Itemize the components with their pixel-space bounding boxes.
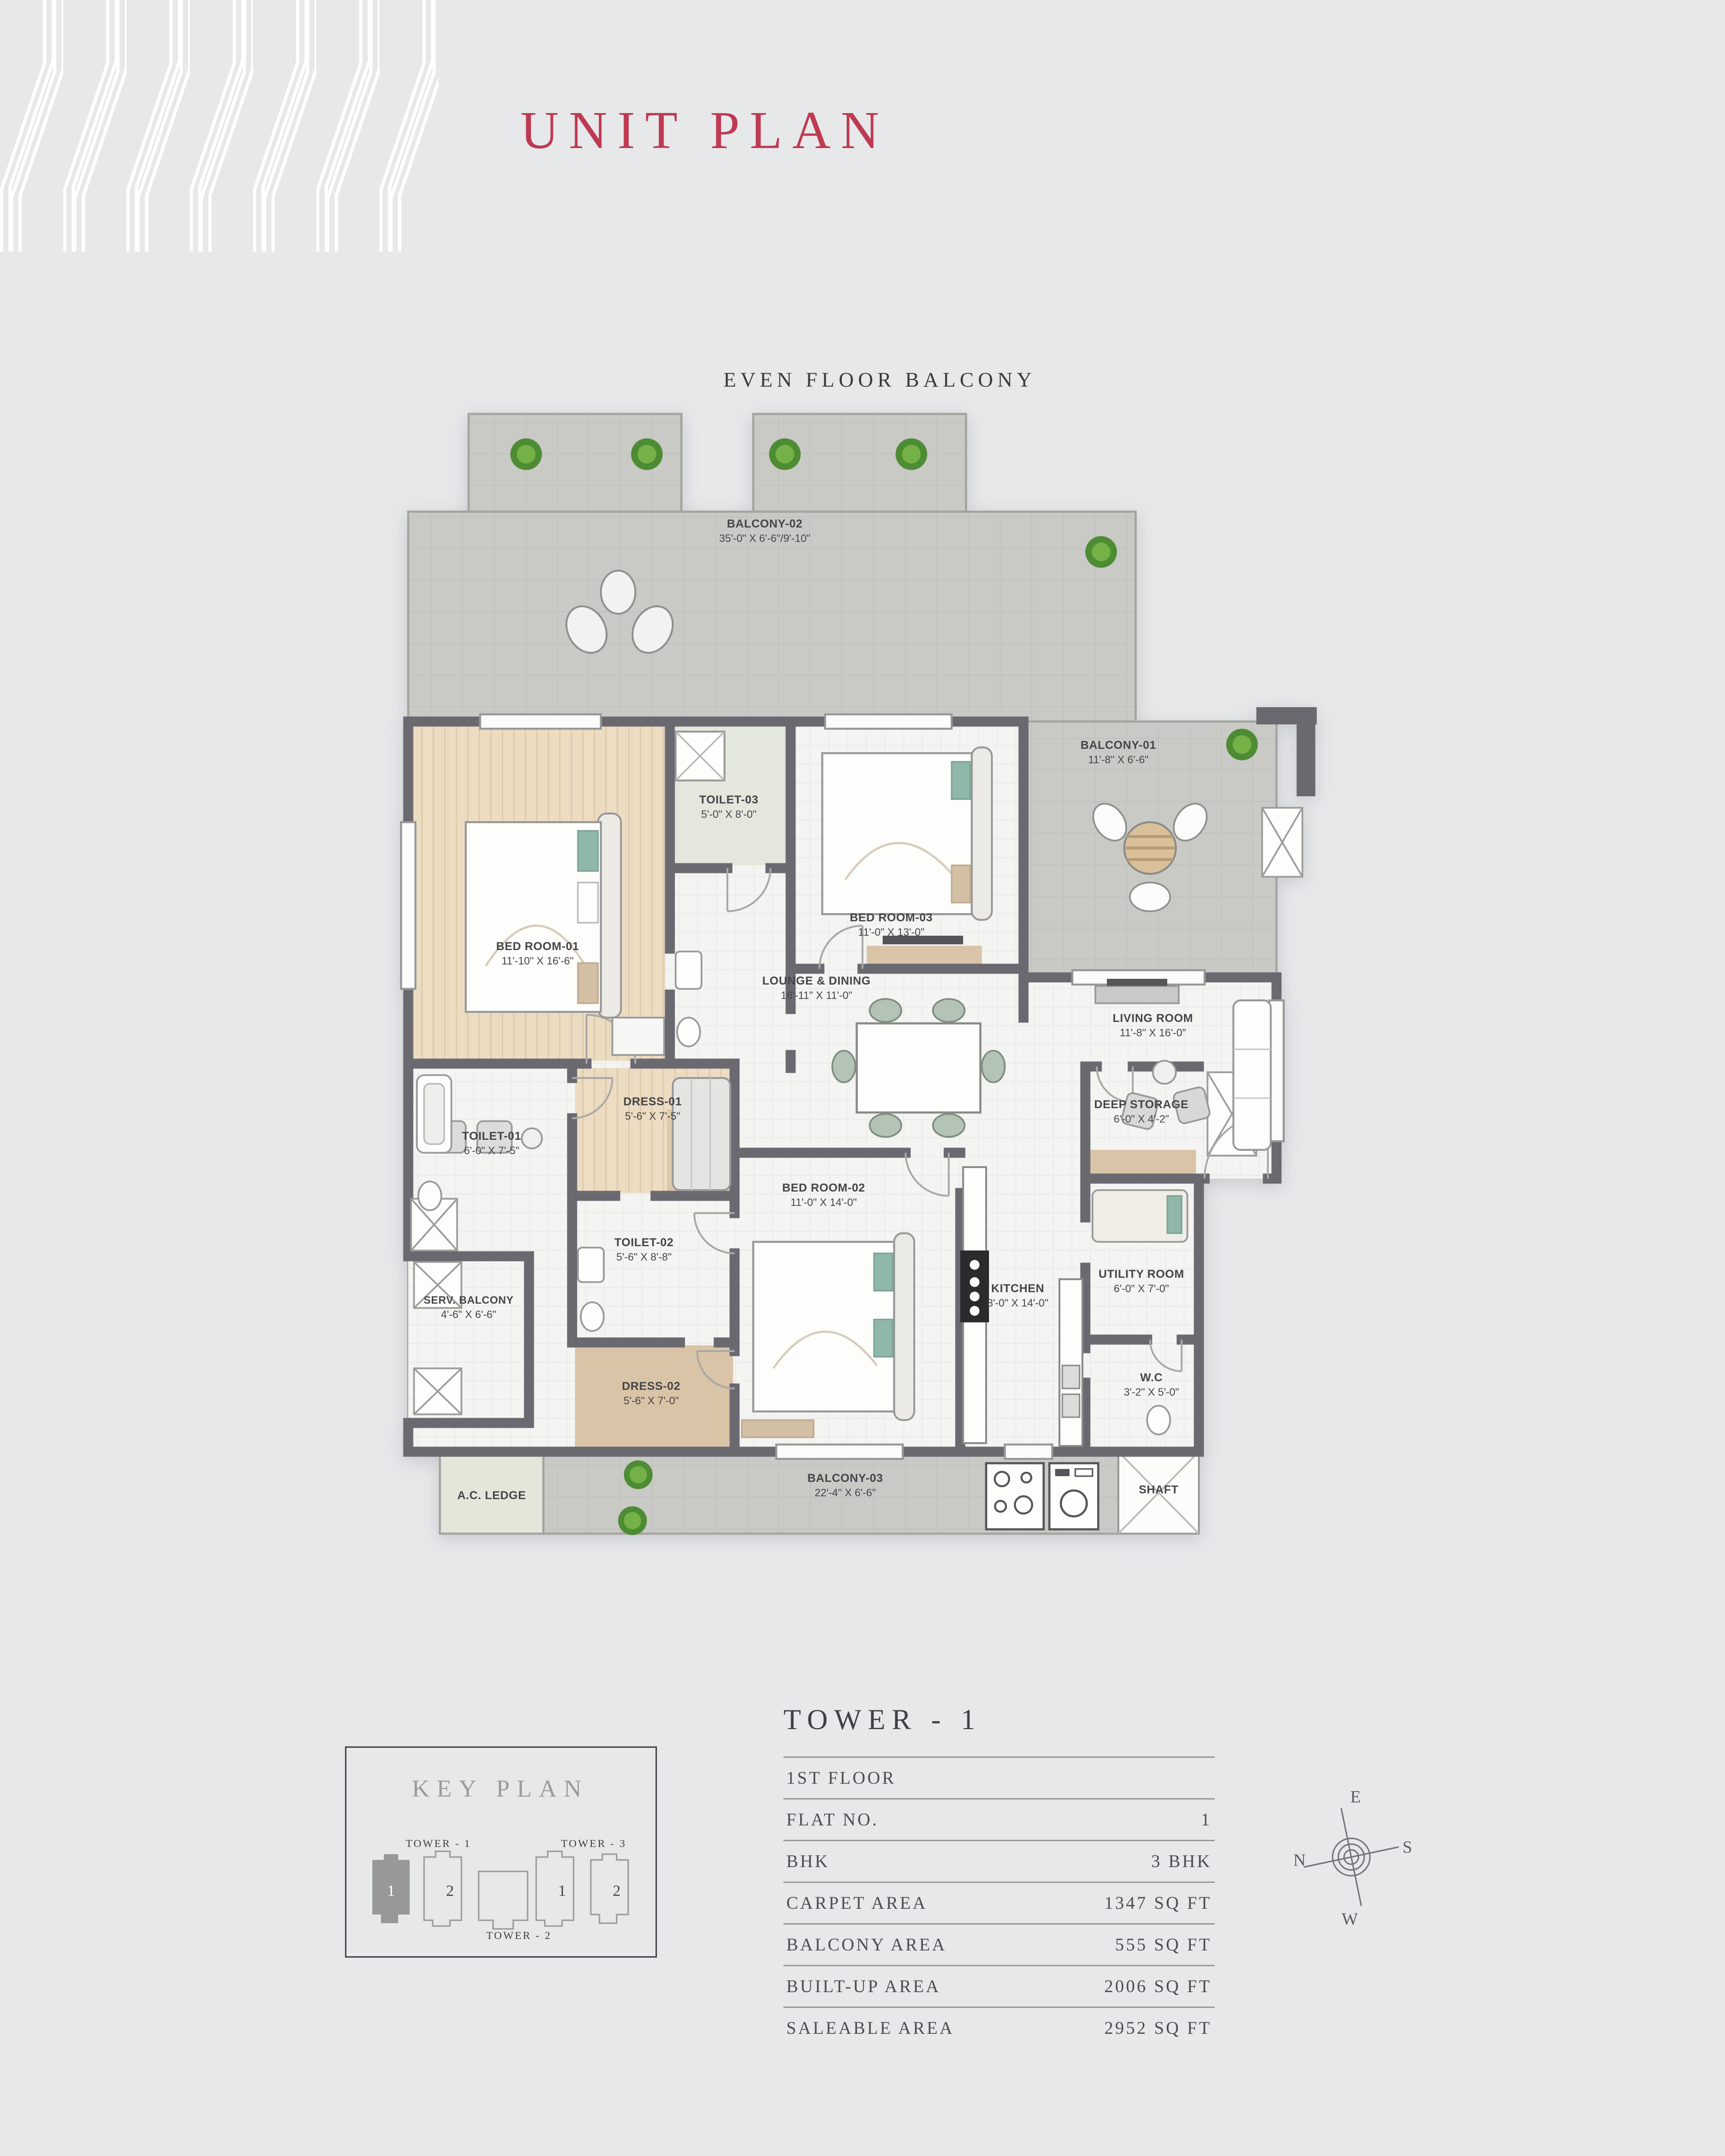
decorative-pattern [0, 0, 438, 252]
exterior-column-2 [1297, 724, 1315, 796]
spec-row-floor: 1ST FLOOR [783, 1756, 1215, 1798]
bedroom3-furniture [822, 747, 992, 944]
key-plan-drawing: KEY PLAN TOWER - 1 TOWER - 3 TOWER - 2 1… [346, 1748, 655, 1956]
key-plan-box: KEY PLAN TOWER - 1 TOWER - 3 TOWER - 2 1… [345, 1746, 657, 1958]
compass-south-label: S [1403, 1837, 1412, 1857]
key-plan-footprints [372, 1851, 628, 1929]
spec-row-builtup-area: BUILT-UP AREA 2006 SQ FT [783, 1965, 1215, 2007]
key-plan-tower1-label: TOWER - 1 [406, 1837, 471, 1849]
key-plan-tower2-label: TOWER - 2 [486, 1929, 552, 1941]
key-plan-tower3-label: TOWER - 3 [561, 1837, 627, 1849]
key-plan-unit-1a: 1 [387, 1882, 395, 1900]
spec-row-saleable-area: SALEABLE AREA 2952 SQ FT [783, 2007, 1215, 2048]
floor-plan-drawing [400, 391, 1334, 1541]
spec-table: TOWER - 1 1ST FLOOR FLAT NO. 1 BHK 3 BHK… [783, 1705, 1215, 2048]
compass-north-label: N [1293, 1850, 1306, 1869]
key-plan-unit-1b: 1 [558, 1882, 566, 1900]
plan-header-label: EVEN FLOOR BALCONY [621, 369, 1138, 394]
spec-row-flat-no: FLAT NO. 1 [783, 1798, 1215, 1840]
key-plan-unit-2b: 2 [613, 1882, 621, 1900]
utility-furniture [1092, 1190, 1187, 1242]
spec-row-balcony-area: BALCONY AREA 555 SQ FT [783, 1923, 1215, 1965]
spec-row-carpet-area: CARPET AREA 1347 SQ FT [783, 1881, 1215, 1923]
compass-rings [1304, 1808, 1399, 1906]
compass-rose: E S N W [1287, 1785, 1419, 1929]
key-plan-unit-2a: 2 [446, 1882, 454, 1900]
key-plan-title: KEY PLAN [412, 1776, 589, 1802]
floor-plan: BALCONY-0235'-0" X 6'-6"/9'-10" BALCONY-… [400, 391, 1334, 1541]
bedroom2-furniture [742, 1233, 914, 1437]
spec-row-bhk: BHK 3 BHK [783, 1840, 1215, 1881]
unit-plan-page: UNIT PLAN EVEN FLOOR BALCONY [0, 0, 1725, 2156]
spec-table-header: TOWER - 1 [783, 1705, 1215, 1738]
compass-east-label: E [1350, 1787, 1361, 1806]
compass-west-label: W [1342, 1909, 1358, 1928]
compass-letters: E S N W [1293, 1787, 1412, 1928]
page-title: UNIT PLAN [520, 101, 889, 162]
exterior-column [1256, 707, 1317, 724]
stove-washer-icons [986, 1463, 1098, 1529]
